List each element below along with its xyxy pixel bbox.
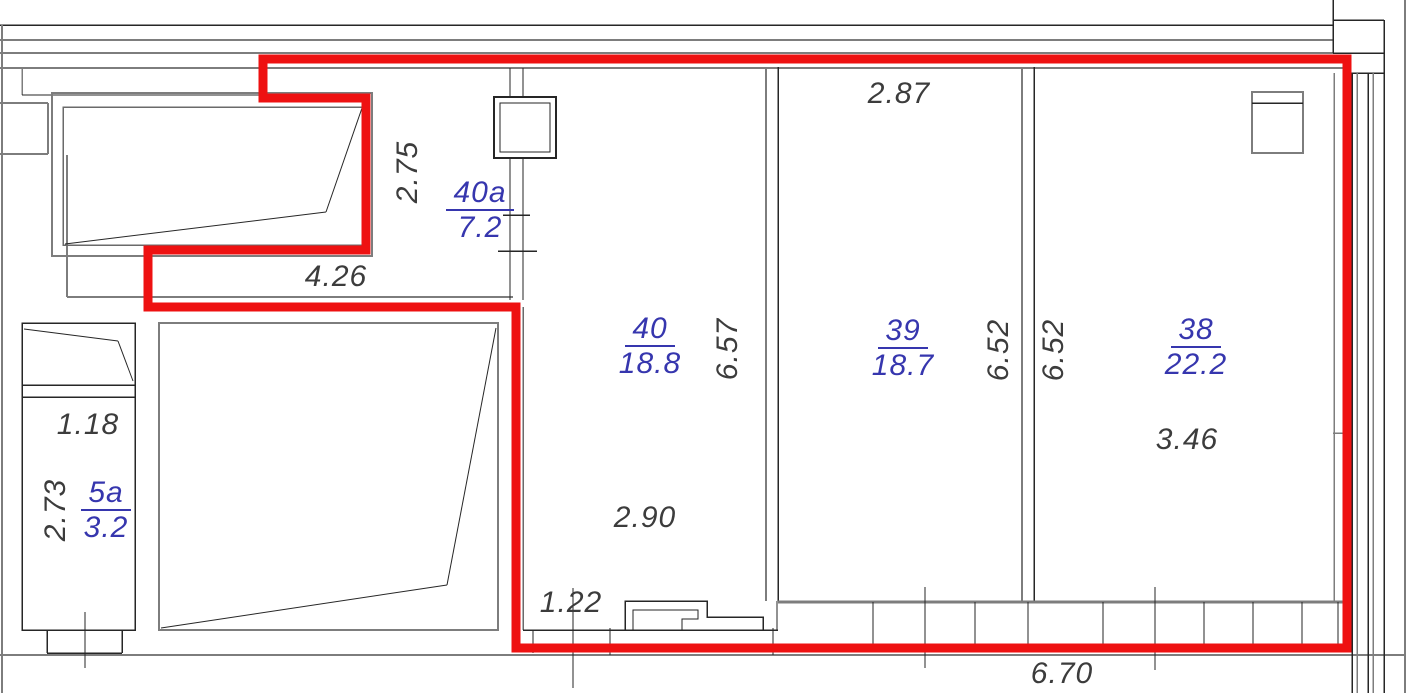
right-wall-layers	[1352, 0, 1405, 693]
left-wall-box	[0, 103, 48, 154]
bottom-left-room-diagonals	[161, 328, 496, 628]
column-square	[494, 97, 556, 158]
room-5a-bottom-stub	[47, 612, 122, 668]
entry-steps	[625, 601, 763, 630]
interior-walls	[494, 67, 1345, 631]
window-dividers	[873, 602, 1338, 649]
plan-linework	[0, 0, 1425, 693]
left-wall-details	[0, 68, 513, 297]
wall-39-38	[1022, 67, 1034, 601]
room-5a-ramp	[24, 329, 133, 381]
unit-outline-red	[148, 59, 1347, 648]
bottom-window-band	[523, 587, 1345, 688]
wall-40-39	[766, 67, 778, 631]
floor-plan: 40a 7.2 40 18.8 39 18.7 38 22.2 5a 3.2 2…	[0, 0, 1425, 693]
bottom-left-room	[159, 323, 498, 630]
room-5a-outline	[22, 323, 135, 668]
exterior-walls	[0, 0, 1405, 693]
top-left-room	[52, 93, 372, 256]
top-left-room-diagonals	[65, 108, 362, 244]
shaft-box	[1252, 92, 1303, 153]
